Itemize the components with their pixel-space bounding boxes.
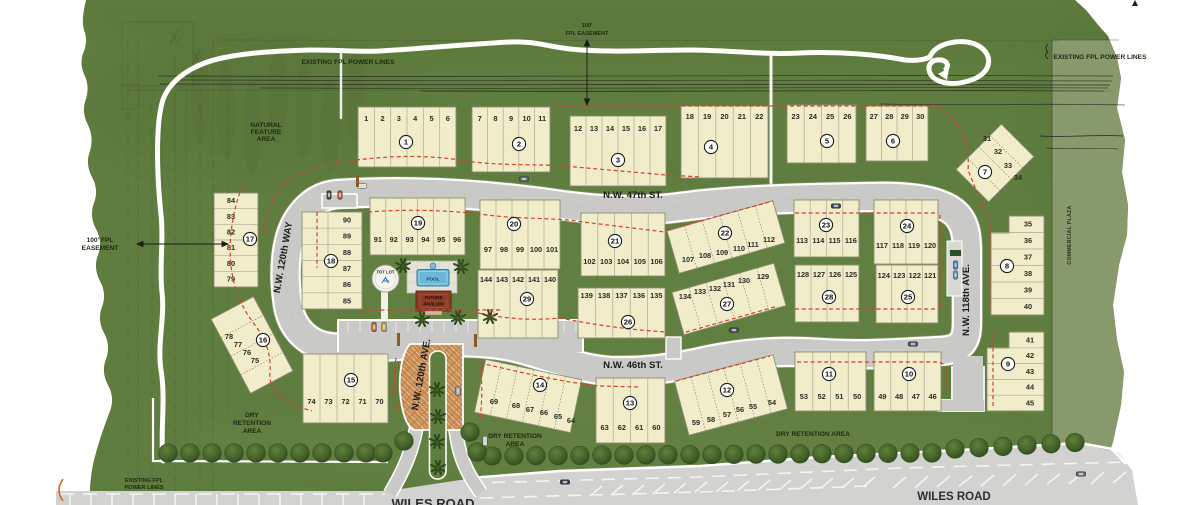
svg-text:135: 135 <box>650 291 662 300</box>
svg-text:EXISTING FPL POWER LINES: EXISTING FPL POWER LINES <box>302 59 396 66</box>
svg-text:71: 71 <box>358 397 366 406</box>
svg-text:5: 5 <box>429 114 433 123</box>
svg-text:127: 127 <box>813 270 825 279</box>
svg-text:88: 88 <box>343 248 351 257</box>
svg-text:11: 11 <box>538 114 546 123</box>
svg-text:18: 18 <box>686 112 694 121</box>
svg-text:19: 19 <box>703 112 711 121</box>
svg-text:PAVILION: PAVILION <box>423 302 443 307</box>
svg-text:FUTURE: FUTURE <box>425 295 443 300</box>
svg-text:24: 24 <box>809 112 818 121</box>
svg-text:77: 77 <box>234 340 242 349</box>
svg-text:124: 124 <box>878 271 891 280</box>
svg-text:43: 43 <box>1026 367 1034 376</box>
svg-text:123: 123 <box>893 271 905 280</box>
svg-text:73: 73 <box>324 397 332 406</box>
svg-text:115: 115 <box>829 236 841 245</box>
svg-text:125: 125 <box>845 270 857 279</box>
svg-text:13: 13 <box>590 124 598 133</box>
svg-text:14: 14 <box>606 124 615 133</box>
svg-text:WILES ROAD: WILES ROAD <box>917 491 990 503</box>
svg-text:11: 11 <box>825 370 834 379</box>
svg-text:102: 102 <box>583 257 595 266</box>
svg-text:DRY RETENTION: DRY RETENTION <box>488 433 542 440</box>
svg-text:13: 13 <box>626 399 634 408</box>
svg-text:58: 58 <box>707 415 715 424</box>
svg-text:FEATURE: FEATURE <box>251 129 282 136</box>
svg-text:25: 25 <box>826 112 834 121</box>
svg-text:3: 3 <box>616 156 620 165</box>
svg-text:142: 142 <box>512 275 524 284</box>
svg-text:17: 17 <box>246 235 254 244</box>
svg-text:29: 29 <box>523 295 531 304</box>
svg-text:26: 26 <box>624 318 632 327</box>
svg-text:94: 94 <box>421 235 430 244</box>
svg-text:59: 59 <box>692 418 700 427</box>
svg-text:23: 23 <box>791 112 799 121</box>
svg-text:POWER LINES: POWER LINES <box>124 485 163 491</box>
svg-text:9: 9 <box>1006 360 1010 369</box>
svg-text:97: 97 <box>484 245 492 254</box>
svg-text:132: 132 <box>709 284 721 293</box>
svg-text:37: 37 <box>1024 253 1032 262</box>
svg-text:62: 62 <box>618 423 626 432</box>
svg-text:AREA: AREA <box>506 441 525 448</box>
svg-text:92: 92 <box>390 235 398 244</box>
svg-text:55: 55 <box>749 402 757 411</box>
svg-text:121: 121 <box>924 271 936 280</box>
svg-text:54: 54 <box>768 398 777 407</box>
svg-text:87: 87 <box>343 264 351 273</box>
svg-text:129: 129 <box>757 272 769 281</box>
svg-text:WILES ROAD: WILES ROAD <box>391 496 474 505</box>
svg-text:38: 38 <box>1024 269 1032 278</box>
svg-text:107: 107 <box>682 255 694 264</box>
svg-text:29: 29 <box>901 112 909 121</box>
svg-text:39: 39 <box>1024 286 1032 295</box>
svg-text:122: 122 <box>909 271 921 280</box>
svg-text:89: 89 <box>343 232 351 241</box>
svg-text:119: 119 <box>908 241 920 250</box>
svg-text:27: 27 <box>870 112 878 121</box>
svg-text:84: 84 <box>227 196 236 205</box>
svg-text:95: 95 <box>437 235 445 244</box>
svg-text:56: 56 <box>736 405 744 414</box>
svg-text:126: 126 <box>829 270 841 279</box>
svg-text:DRY RETENTION AREA: DRY RETENTION AREA <box>776 431 850 438</box>
svg-text:98: 98 <box>500 245 508 254</box>
svg-text:130: 130 <box>738 276 750 285</box>
svg-text:106: 106 <box>650 257 662 266</box>
svg-text:50: 50 <box>853 392 861 401</box>
svg-text:TOT LOT: TOT LOT <box>377 270 395 275</box>
svg-text:26: 26 <box>843 112 851 121</box>
svg-text:N.W. 46th ST.: N.W. 46th ST. <box>603 360 663 371</box>
svg-text:105: 105 <box>634 257 646 266</box>
svg-text:EXISTING FPL: EXISTING FPL <box>125 478 164 484</box>
svg-text:DRY: DRY <box>245 412 259 419</box>
svg-text:10: 10 <box>522 114 530 123</box>
svg-text:134: 134 <box>679 292 692 301</box>
svg-text:33: 33 <box>1004 161 1012 170</box>
svg-text:3: 3 <box>397 114 401 123</box>
svg-text:67: 67 <box>526 405 534 414</box>
svg-text:103: 103 <box>600 257 612 266</box>
svg-text:16: 16 <box>259 336 267 345</box>
svg-text:15: 15 <box>347 376 356 385</box>
svg-text:69: 69 <box>490 397 498 406</box>
svg-text:31: 31 <box>983 134 991 143</box>
svg-text:27: 27 <box>723 300 731 309</box>
svg-text:139: 139 <box>581 291 593 300</box>
svg-text:RETENTION: RETENTION <box>233 420 271 427</box>
svg-text:114: 114 <box>812 236 825 245</box>
svg-text:61: 61 <box>635 423 643 432</box>
svg-text:1: 1 <box>364 114 368 123</box>
svg-text:110: 110 <box>733 244 745 253</box>
svg-text:15: 15 <box>622 124 630 133</box>
svg-text:12: 12 <box>574 124 582 133</box>
svg-text:140: 140 <box>544 275 556 284</box>
svg-text:16: 16 <box>638 124 646 133</box>
svg-text:20: 20 <box>720 112 728 121</box>
svg-text:AREA: AREA <box>243 428 262 435</box>
svg-text:116: 116 <box>845 236 857 245</box>
svg-text:8: 8 <box>1005 262 1009 271</box>
svg-text:60: 60 <box>652 423 660 432</box>
svg-text:63: 63 <box>600 423 608 432</box>
svg-text:14: 14 <box>536 381 545 390</box>
svg-text:90: 90 <box>343 216 351 225</box>
svg-text:136: 136 <box>633 291 645 300</box>
svg-text:66: 66 <box>540 408 548 417</box>
svg-text:65: 65 <box>554 412 562 421</box>
svg-text:22: 22 <box>721 229 729 238</box>
svg-text:44: 44 <box>1026 383 1035 392</box>
svg-text:78: 78 <box>225 332 233 341</box>
svg-text:75: 75 <box>251 356 259 365</box>
svg-text:104: 104 <box>617 257 630 266</box>
svg-text:9: 9 <box>509 114 513 123</box>
svg-text:N.W. 47th ST.: N.W. 47th ST. <box>603 190 663 201</box>
svg-text:30: 30 <box>916 112 924 121</box>
svg-text:100': 100' <box>582 23 593 29</box>
svg-text:72: 72 <box>341 397 349 406</box>
svg-text:48: 48 <box>895 392 903 401</box>
svg-text:96: 96 <box>453 235 461 244</box>
svg-text:45: 45 <box>1026 399 1034 408</box>
svg-text:2: 2 <box>517 140 521 149</box>
svg-text:86: 86 <box>343 280 351 289</box>
svg-text:23: 23 <box>822 221 830 230</box>
svg-text:138: 138 <box>598 291 610 300</box>
svg-text:120: 120 <box>924 241 936 250</box>
svg-text:113: 113 <box>796 236 808 245</box>
svg-text:18: 18 <box>327 257 335 266</box>
svg-text:20: 20 <box>510 220 518 229</box>
svg-text:24: 24 <box>903 222 912 231</box>
svg-text:FPL EASEMENT: FPL EASEMENT <box>565 31 609 37</box>
svg-text:131: 131 <box>723 280 735 289</box>
svg-text:8: 8 <box>493 114 497 123</box>
svg-text:7: 7 <box>478 114 482 123</box>
svg-text:143: 143 <box>496 275 508 284</box>
svg-text:POOL: POOL <box>426 277 439 282</box>
svg-text:141: 141 <box>528 275 540 284</box>
svg-text:32: 32 <box>994 147 1002 156</box>
svg-text:137: 137 <box>615 291 627 300</box>
svg-text:133: 133 <box>694 287 706 296</box>
svg-text:NATURAL: NATURAL <box>250 122 281 129</box>
svg-text:EASEMENT: EASEMENT <box>82 245 119 252</box>
svg-text:10: 10 <box>905 370 913 379</box>
svg-text:85: 85 <box>343 296 351 305</box>
svg-text:64: 64 <box>567 416 576 425</box>
svg-text:AREA: AREA <box>257 136 276 143</box>
svg-text:19: 19 <box>414 219 422 228</box>
svg-text:99: 99 <box>516 245 524 254</box>
svg-text:76: 76 <box>243 348 251 357</box>
svg-text:112: 112 <box>763 235 775 244</box>
svg-text:52: 52 <box>817 392 825 401</box>
svg-text:40: 40 <box>1024 302 1032 311</box>
svg-text:93: 93 <box>405 235 413 244</box>
svg-text:28: 28 <box>885 112 893 121</box>
svg-text:49: 49 <box>878 392 886 401</box>
svg-text:42: 42 <box>1026 351 1034 360</box>
svg-text:36: 36 <box>1024 236 1032 245</box>
svg-text:17: 17 <box>654 124 662 133</box>
svg-text:7: 7 <box>983 168 987 177</box>
svg-text:81: 81 <box>227 243 235 252</box>
svg-text:101: 101 <box>546 245 558 254</box>
svg-text:108: 108 <box>699 251 711 260</box>
svg-text:28: 28 <box>825 293 833 302</box>
svg-text:COMMERCIAL PLAZA: COMMERCIAL PLAZA <box>1067 205 1073 264</box>
svg-text:74: 74 <box>307 397 316 406</box>
svg-text:2: 2 <box>380 114 384 123</box>
svg-text:70: 70 <box>375 397 383 406</box>
svg-text:57: 57 <box>723 410 731 419</box>
svg-text:53: 53 <box>800 392 808 401</box>
svg-text:47: 47 <box>912 392 920 401</box>
svg-text:51: 51 <box>835 392 843 401</box>
svg-text:34: 34 <box>1014 173 1023 182</box>
svg-text:21: 21 <box>611 237 620 246</box>
svg-text:111: 111 <box>747 240 759 249</box>
svg-text:68: 68 <box>512 401 520 410</box>
svg-text:6: 6 <box>446 114 450 123</box>
svg-text:117: 117 <box>876 241 888 250</box>
svg-text:100: 100 <box>530 245 542 254</box>
svg-text:100' FPL: 100' FPL <box>87 237 114 244</box>
svg-text:21: 21 <box>738 112 746 121</box>
svg-text:6: 6 <box>891 137 895 146</box>
svg-text:N.W. 118th AVE.: N.W. 118th AVE. <box>961 264 972 336</box>
svg-text:35: 35 <box>1024 220 1032 229</box>
svg-text:128: 128 <box>797 270 809 279</box>
svg-text:41: 41 <box>1026 335 1034 344</box>
svg-text:12: 12 <box>723 386 731 395</box>
svg-text:109: 109 <box>716 248 728 257</box>
svg-text:118: 118 <box>892 241 904 250</box>
svg-text:46: 46 <box>928 392 936 401</box>
svg-text:91: 91 <box>374 235 382 244</box>
svg-text:144: 144 <box>480 275 493 284</box>
svg-text:22: 22 <box>755 112 763 121</box>
svg-text:25: 25 <box>904 293 913 302</box>
svg-text:EXISTING FPL POWER LINES: EXISTING FPL POWER LINES <box>1054 54 1148 61</box>
